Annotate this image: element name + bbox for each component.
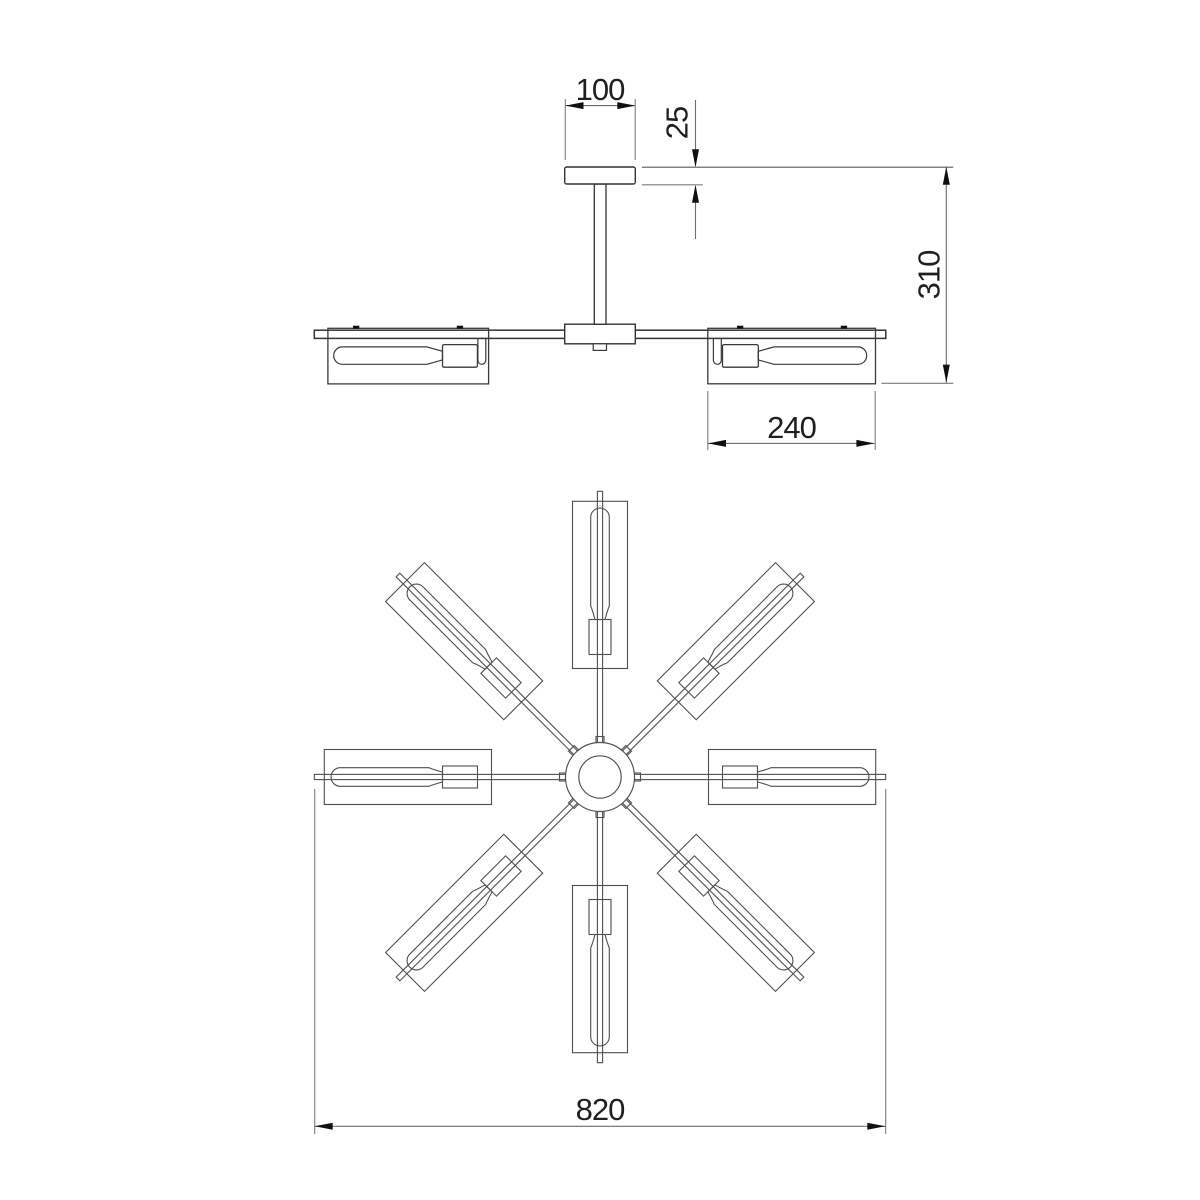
svg-text:820: 820 xyxy=(576,1092,625,1127)
svg-text:240: 240 xyxy=(767,410,816,445)
svg-text:100: 100 xyxy=(576,72,625,107)
svg-text:25: 25 xyxy=(660,107,695,139)
svg-text:310: 310 xyxy=(912,250,947,299)
